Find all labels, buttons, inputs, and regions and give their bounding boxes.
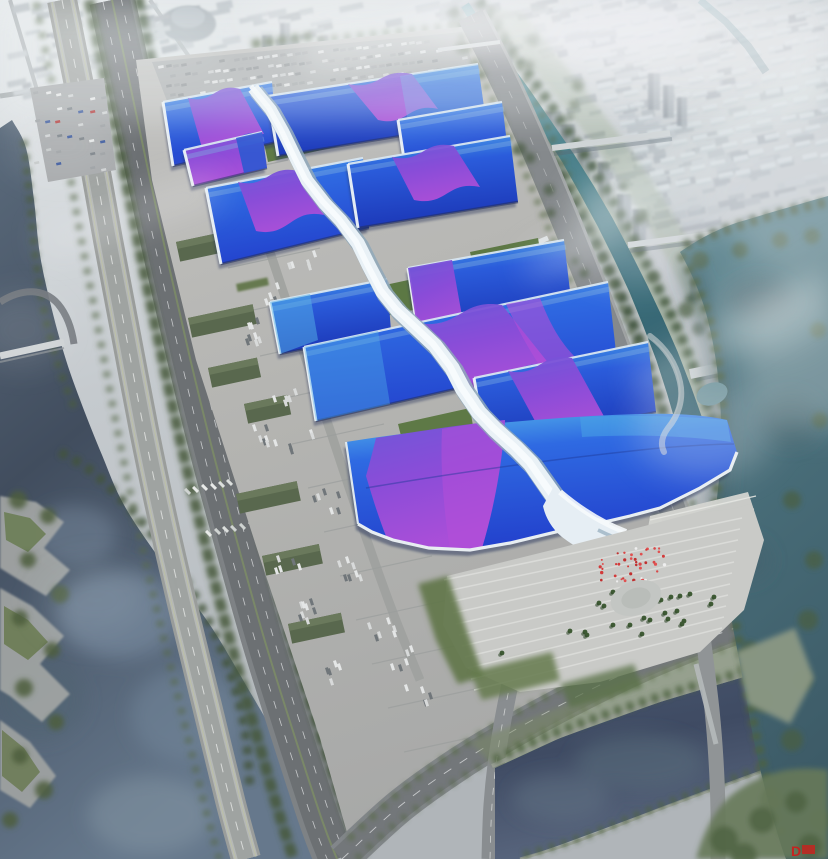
svg-text:D: D <box>791 843 801 859</box>
